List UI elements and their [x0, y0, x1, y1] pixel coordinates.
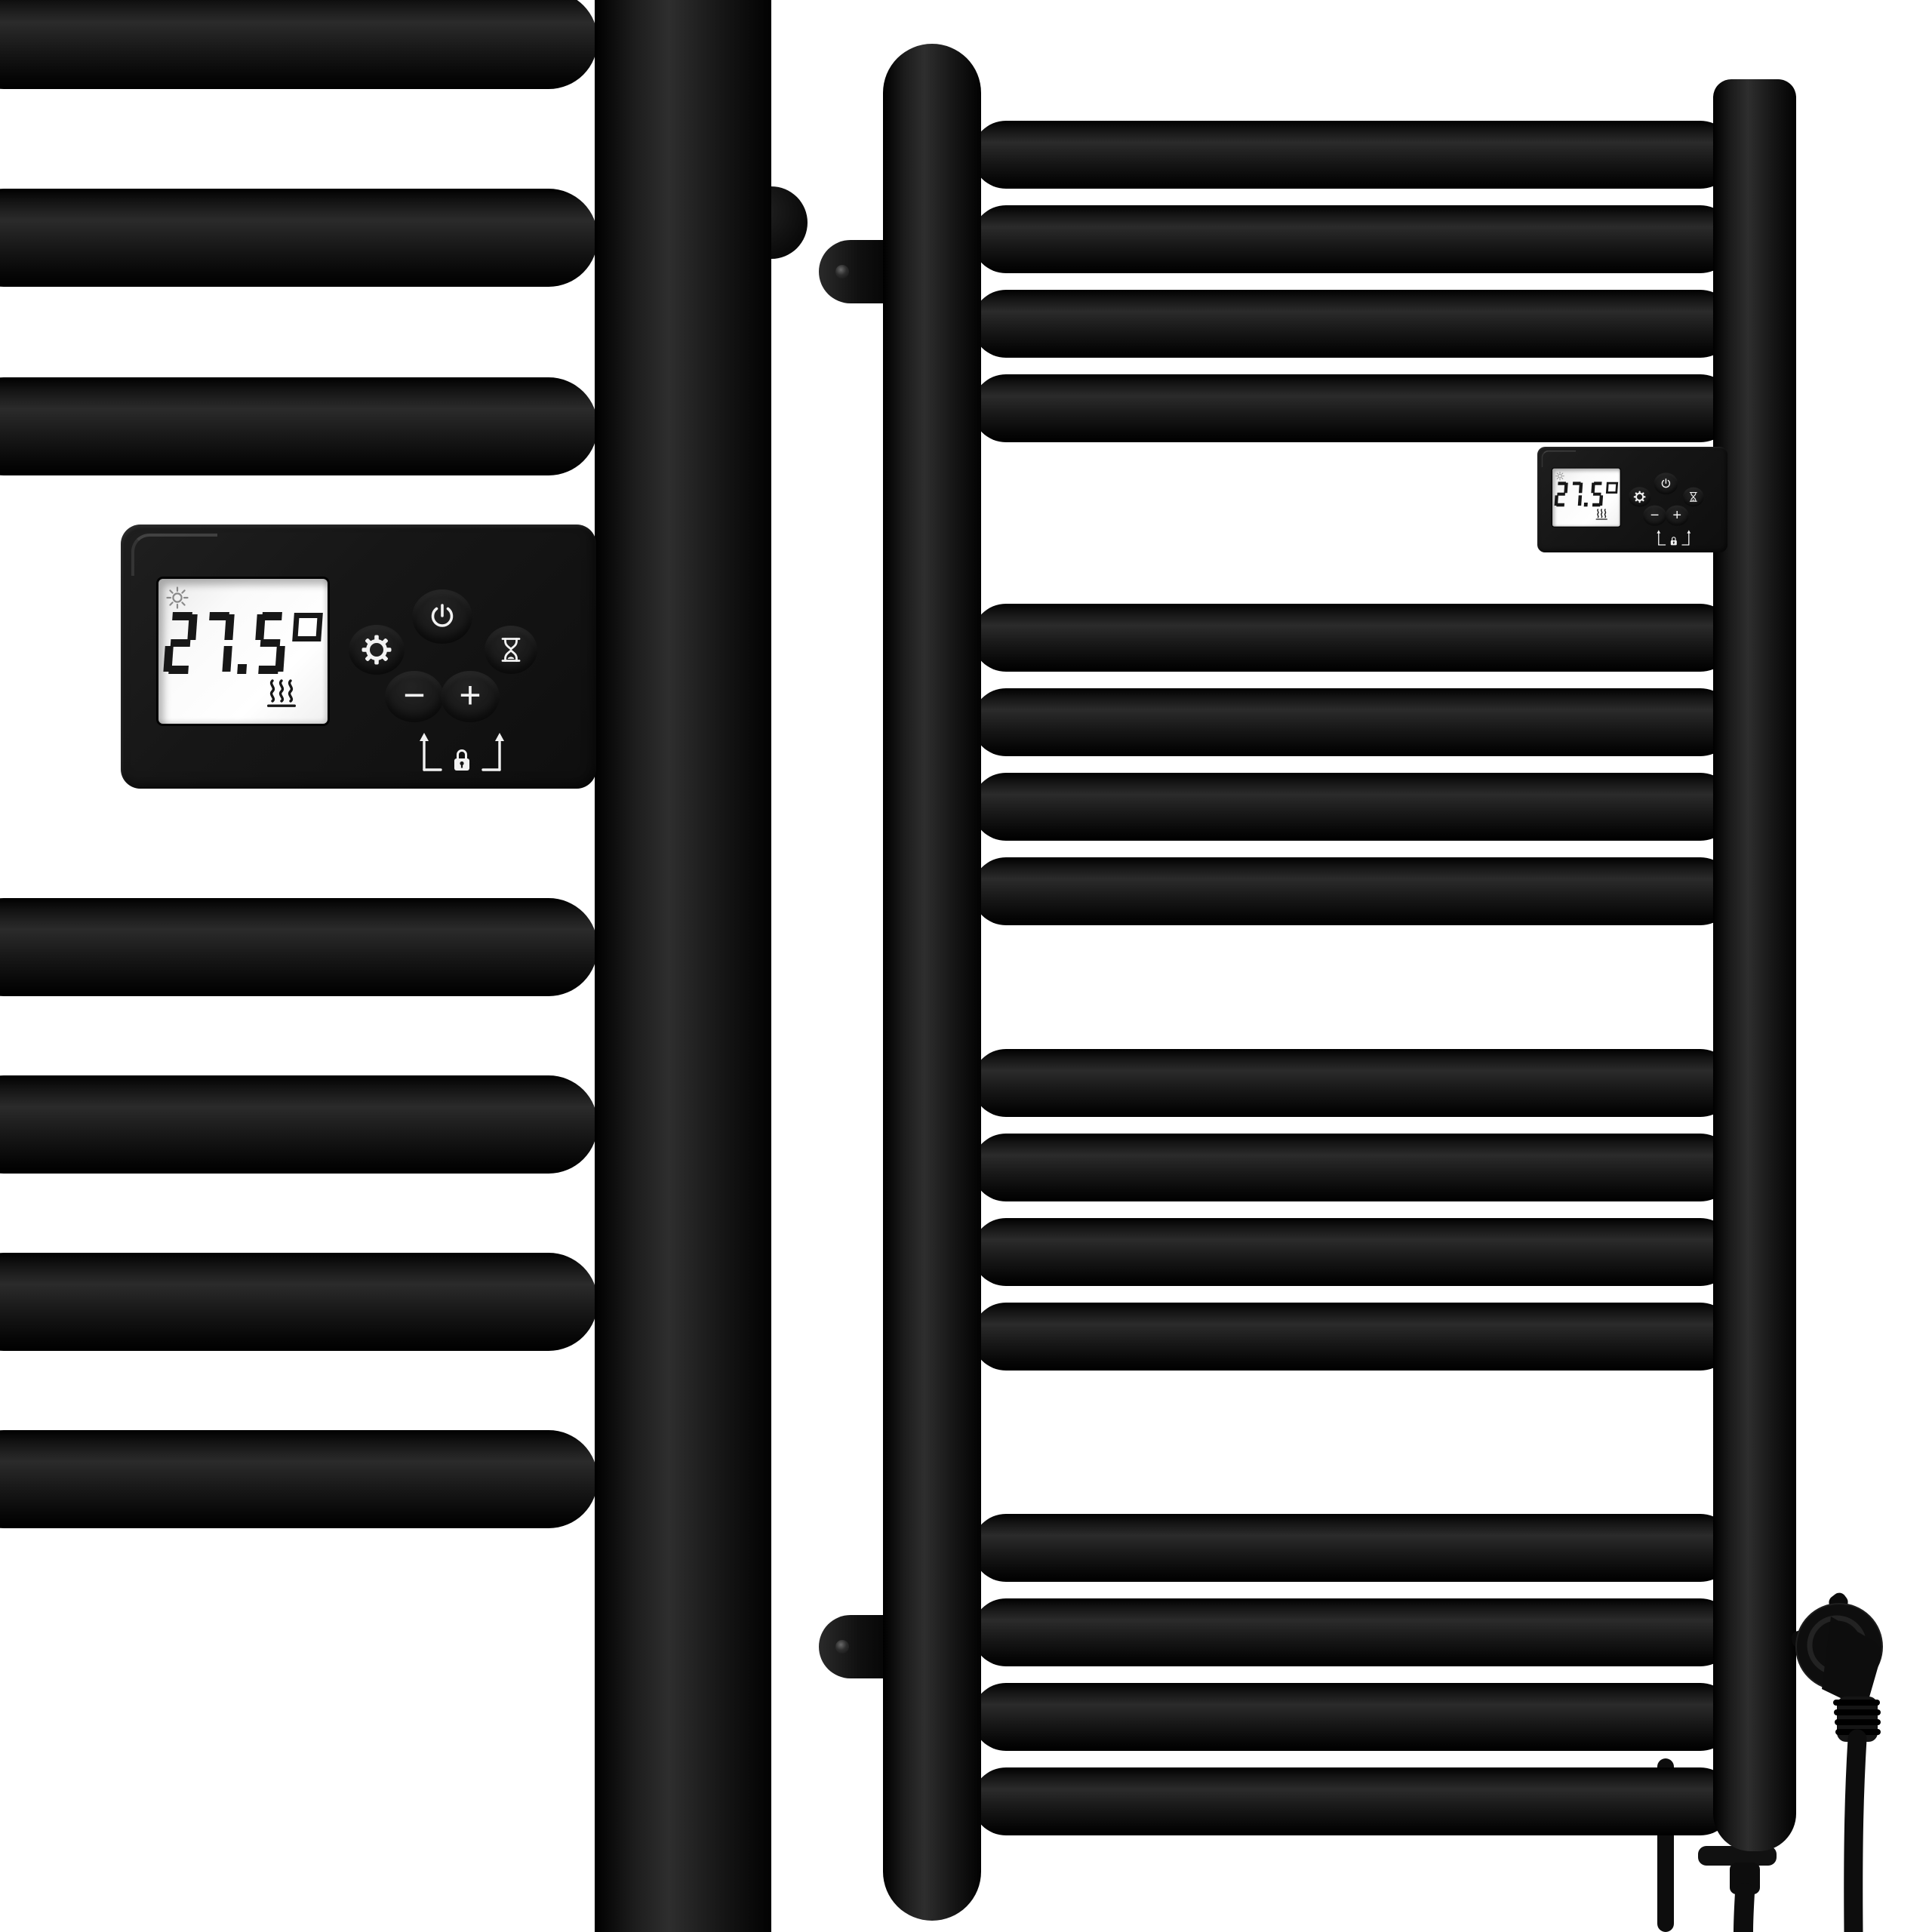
wall-bracket-bottom — [819, 1615, 891, 1678]
towel-rail-rung — [0, 1253, 598, 1351]
minus-label: − — [403, 676, 425, 714]
sun-icon — [1555, 472, 1564, 481]
settings-button — [349, 625, 405, 675]
lock-hint — [1644, 527, 1704, 546]
towel-rail-rung — [972, 1134, 1734, 1201]
lcd-display: 27.5° — [158, 579, 328, 724]
gear-icon — [1633, 491, 1647, 504]
controller-top-notch — [1542, 451, 1577, 467]
minus-label: − — [1651, 507, 1660, 522]
power-icon — [427, 601, 457, 632]
towel-rail-rung — [0, 0, 598, 89]
towel-rail-rung — [0, 377, 598, 475]
heat-waves-icon — [1595, 509, 1608, 520]
towel-rail-rung — [972, 773, 1734, 841]
towel-rail-rung — [972, 1049, 1734, 1117]
towel-rail-rung — [972, 205, 1734, 273]
increase-button: + — [441, 671, 500, 722]
lock-hint — [386, 725, 537, 772]
lock-arrow-left-icon — [1657, 529, 1666, 546]
towel-rail-rung — [972, 1218, 1734, 1286]
power-icon — [1660, 477, 1672, 490]
bracket-screw — [835, 1640, 849, 1654]
towel-rail-rung — [972, 1598, 1734, 1666]
towel-rail-rung — [972, 1514, 1734, 1582]
plug-cord — [1854, 1739, 1857, 1932]
hourglass-icon — [1688, 491, 1698, 502]
towel-rail-rung — [972, 604, 1734, 672]
towel-rail-rung — [0, 1430, 598, 1528]
decrease-button: − — [1643, 506, 1666, 526]
power-plug — [1758, 1577, 1932, 1932]
power-button — [412, 589, 472, 644]
temperature-value: 27.5° — [245, 612, 245, 613]
plus-label: + — [1672, 507, 1681, 522]
hourglass-icon — [499, 636, 523, 663]
towel-rail-rung — [0, 189, 598, 287]
lock-icon — [450, 745, 474, 774]
towel-rail-rung — [972, 1303, 1734, 1371]
thermostat-controller: 27.5° — [121, 525, 596, 789]
lock-arrow-right-icon — [1681, 529, 1690, 546]
lock-arrow-left-icon — [420, 730, 442, 772]
controller-top-notch — [131, 534, 217, 576]
increase-button: + — [1666, 506, 1689, 526]
bracket-screw — [835, 265, 849, 278]
lock-arrow-right-icon — [481, 730, 504, 772]
lcd-display: 27.5° — [1552, 469, 1620, 527]
towel-rail-rung — [0, 898, 598, 996]
towel-rail-rung — [972, 374, 1734, 442]
heat-waves-icon — [264, 678, 299, 707]
power-button — [1654, 472, 1678, 494]
towel-rail-rung — [972, 1767, 1734, 1835]
towel-rail-rung — [972, 121, 1734, 189]
sun-icon — [166, 586, 189, 609]
thermostat-controller: 27.5° — [1537, 447, 1727, 552]
radiator-left-rail — [883, 44, 981, 1921]
lock-icon — [1669, 535, 1678, 546]
towel-rail-rung — [972, 857, 1734, 925]
timer-button — [1683, 488, 1704, 507]
closeup-vertical-rail — [595, 0, 771, 1932]
timer-button — [485, 626, 537, 674]
wall-bracket-top — [819, 240, 891, 303]
temperature-display: 27.5° — [1552, 481, 1621, 507]
product-photo: 27.5° — [0, 0, 1932, 1932]
plus-label: + — [459, 676, 481, 714]
towel-rail-rung — [972, 290, 1734, 358]
towel-rail-rung — [0, 1075, 598, 1174]
gear-icon — [360, 633, 393, 666]
temperature-display: 27.5° — [156, 612, 330, 675]
towel-rail-rung — [972, 1683, 1734, 1751]
settings-button — [1629, 487, 1651, 506]
decrease-button: − — [385, 671, 444, 722]
towel-rail-rung — [972, 688, 1734, 756]
